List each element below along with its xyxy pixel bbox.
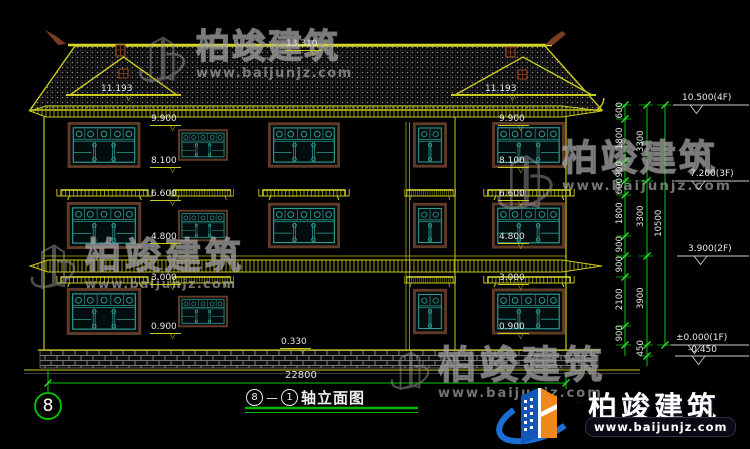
level-marker-gable-left: 11.193 ▽ [100,78,137,101]
dim-segment: 1800 [616,121,625,155]
left-finial-icon [45,30,66,45]
watermark-website: www.baijunjz.com [196,66,353,82]
watermark: 柏竣建筑 www.baijunjz.com [28,238,245,296]
watermark-logo-icon [28,238,78,296]
awning-r2-c1 [57,189,152,200]
window-r1-c1 [69,123,139,166]
level-marker: 6.600 ▽ [150,183,181,206]
window-r1-c4 [414,124,445,167]
cad-elevation-screenshot: 13.310 ▽ 11.193 ▽ 11.193 ▽ 9.900 ▽ 8.100… [0,0,750,449]
brand-website: www.baijunjz.com [585,417,736,437]
window-r1-c3 [269,124,338,167]
floor-flag-2f: 3.900(2F) [688,245,732,254]
level-marker: 0.900 ▽ [498,316,529,339]
level-marker: 9.900 ▽ [150,108,181,131]
level-marker: 8.100 ▽ [150,150,181,173]
watermark-logo-icon [136,30,188,90]
level-marker: 4.800 ▽ [498,226,529,249]
dim-segment: 3900 [637,281,646,315]
awning-r3-c4 [404,276,455,287]
level-marker: 0.900 ▽ [150,316,181,339]
axis-circle-end: 1 [281,389,298,406]
level-marker-gable-right: 11.193 ▽ [484,78,521,101]
floor-flag-4f: 10.500(4F) [682,94,731,103]
watermark-website: www.baijunjz.com [562,178,732,194]
dim-segment: 900 [616,316,625,350]
dim-segment: 450 [637,331,646,365]
title-dash: — [266,391,278,405]
title-underline [245,408,418,413]
level-marker: 6.600 ▽ [498,183,529,206]
watermark-company: 柏竣建筑 [196,30,353,66]
window-r3-c2 [179,297,227,327]
level-marker: 3.000 ▽ [150,267,181,290]
watermark-logo-icon [388,346,432,396]
dim-segment: 900 [616,247,625,281]
level-marker: 4.800 ▽ [150,226,181,249]
axis-circle-start: 8 [246,389,263,406]
overall-width-dim: 22800 [285,371,317,381]
window-r1-c2 [179,130,227,160]
dim-segment: 1800 [616,196,625,230]
awning-r2-c4 [404,189,455,200]
drawing-title: 8 — 1 轴立面图 [246,387,365,408]
window-r2-c4 [414,204,445,247]
level-marker-ridge: 13.310 ▽ [285,33,322,56]
floor-flag-1f: ±0.000(1F) [676,334,727,343]
floor-flag-ground: -0.450 [688,346,717,355]
right-finial-icon [545,31,566,45]
axis-bubble-label: 8 [39,396,57,416]
window-r3-c1 [68,289,139,333]
downspout [406,122,410,368]
title-text: 轴立面图 [301,387,365,408]
level-marker: 9.900 ▽ [498,108,529,131]
awning-r2-c3 [259,189,350,200]
level-marker: 3.000 ▽ [498,267,529,290]
dim-segment: 2100 [616,282,625,316]
brand-logo-icon [493,378,593,448]
level-marker-plinth: 0.330 ▽ [280,331,311,354]
windows-row-1 [69,123,563,166]
level-marker: 8.100 ▽ [498,150,529,173]
window-r3-c4 [414,290,445,333]
dim-segment: 3300 [637,199,646,233]
watermark: 柏竣建筑 www.baijunjz.com [494,140,732,226]
floor-flag-3f: 7.200(3F) [690,170,734,179]
dim-overall: 10500 [655,206,664,240]
brand-footer: 柏竣建筑 www.baijunjz.com [493,376,750,449]
dim-segment: 3300 [637,124,646,158]
window-r2-c3 [269,204,338,247]
